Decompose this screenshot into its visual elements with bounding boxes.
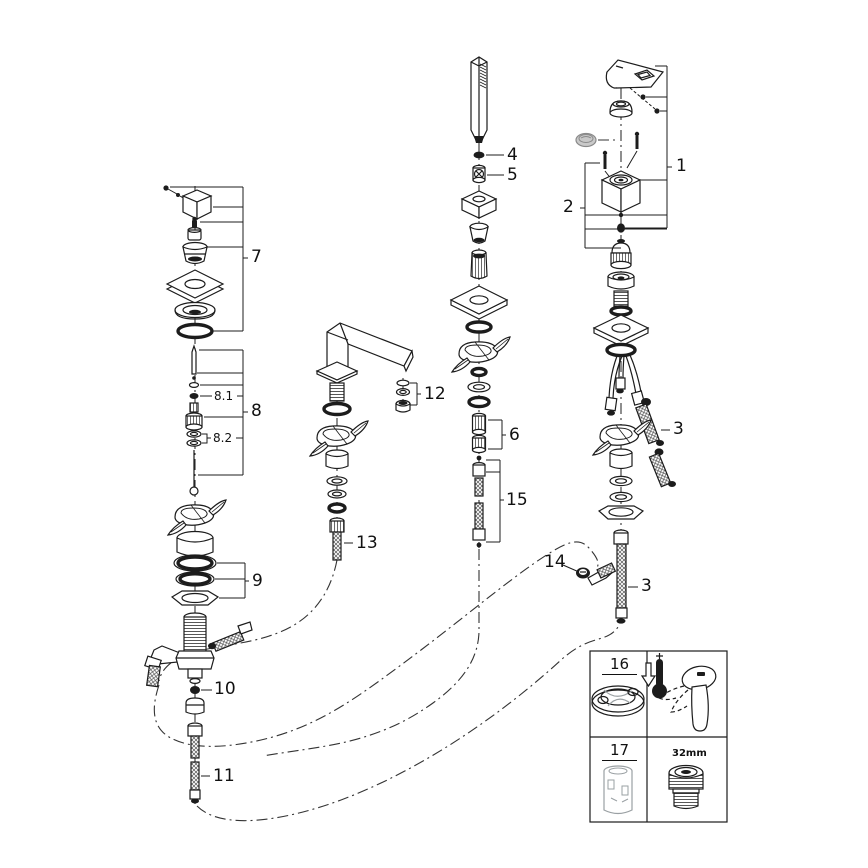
shower-holder-cube [462,191,496,218]
threaded-shank [614,291,628,306]
lever-handle [606,60,663,88]
plug-cap [576,134,618,147]
ribbed-cone [471,250,487,279]
cartridge-sleeve-part [604,766,632,814]
hose-connector [188,723,202,736]
spout-base-flange [317,362,357,383]
callout-3-lower: 3 [641,578,652,595]
hose-end-fitting [190,790,200,804]
legend-size-label: 32mm [672,749,707,759]
handle-group-7 [163,185,248,337]
callout-4: 4 [507,147,518,164]
callout-13: 13 [356,535,378,552]
diverter-cartridge [186,413,202,430]
screw-3-second [649,448,676,487]
handshower [471,57,487,143]
aerator-group-12 [396,380,421,412]
spring [190,403,198,412]
handle-screw [192,217,197,228]
square-escutcheon-left [167,270,223,303]
cartridge-cap [188,228,201,240]
legend-box [590,651,727,822]
spacer-sleeve [326,450,348,469]
hose-3-lower [614,530,628,624]
hose-guide-6 [473,413,486,452]
callout-8: 8 [251,403,262,420]
callout-2: 2 [563,199,574,216]
callout-14: 14 [544,554,566,571]
callout-9: 9 [252,573,263,590]
square-escutcheon-right [594,315,648,346]
legend-label-17: 17 [602,743,637,761]
legend-label-16: 16 [602,657,637,675]
hose-connector [330,518,344,532]
callout-6: 6 [509,427,520,444]
hex-nut [172,591,218,605]
cube-handle [183,190,211,219]
callout-11: 11 [213,768,235,785]
cone-adapter [470,223,488,243]
washer-4 [474,152,485,159]
callout-8-1: 8.1 [214,390,233,402]
mounting-horseshoe [168,500,226,535]
hose-group-10-11 [186,686,212,804]
check-valve-5 [473,165,485,182]
callout-7: 7 [251,249,262,266]
cube-handle-right [602,171,640,212]
spout-group [310,323,421,560]
cap-nut [186,698,204,714]
cartridge-cone [183,243,207,264]
right-screw-connector [208,622,252,651]
callout-5: 5 [507,167,518,184]
diverter-group-8 [186,346,248,495]
shank-flange [608,272,634,289]
assembly-centerlines [195,88,621,804]
callout-15: 15 [506,492,528,509]
hex-nut-right [599,506,643,519]
adapter-32mm-part [669,766,703,809]
spacer-sleeve [177,532,213,557]
callout-3-upper: 3 [673,421,684,438]
spacer-sleeve-right [610,449,632,469]
callout-8-2: 8.2 [213,432,232,444]
left-elbow-connector [145,646,180,687]
cartridge-right [611,239,631,269]
diagram-line-art: .ln{stroke:#1c1c1c;fill:none;stroke-widt… [0,0,868,868]
round-flange-left [175,303,215,320]
spout-shank [330,383,344,401]
seal-10 [190,686,200,694]
callout-12: 12 [424,386,446,403]
spout-hose-13 [333,532,341,560]
main-body-group [563,60,676,624]
square-escutcheon-mid [451,286,507,319]
callout-10: 10 [214,681,236,698]
dome-nut [610,101,632,117]
valve-hex-body [176,651,214,678]
callout-1: 1 [676,158,687,175]
exploded-parts-diagram: .ln{stroke:#1c1c1c;fill:none;stroke-widt… [0,0,868,868]
mounting-horseshoe [452,337,510,372]
elbow-connector-14 [576,563,615,585]
mount-group-9 [172,532,249,606]
handshower-group [451,57,510,547]
diverter-pin [192,346,196,374]
